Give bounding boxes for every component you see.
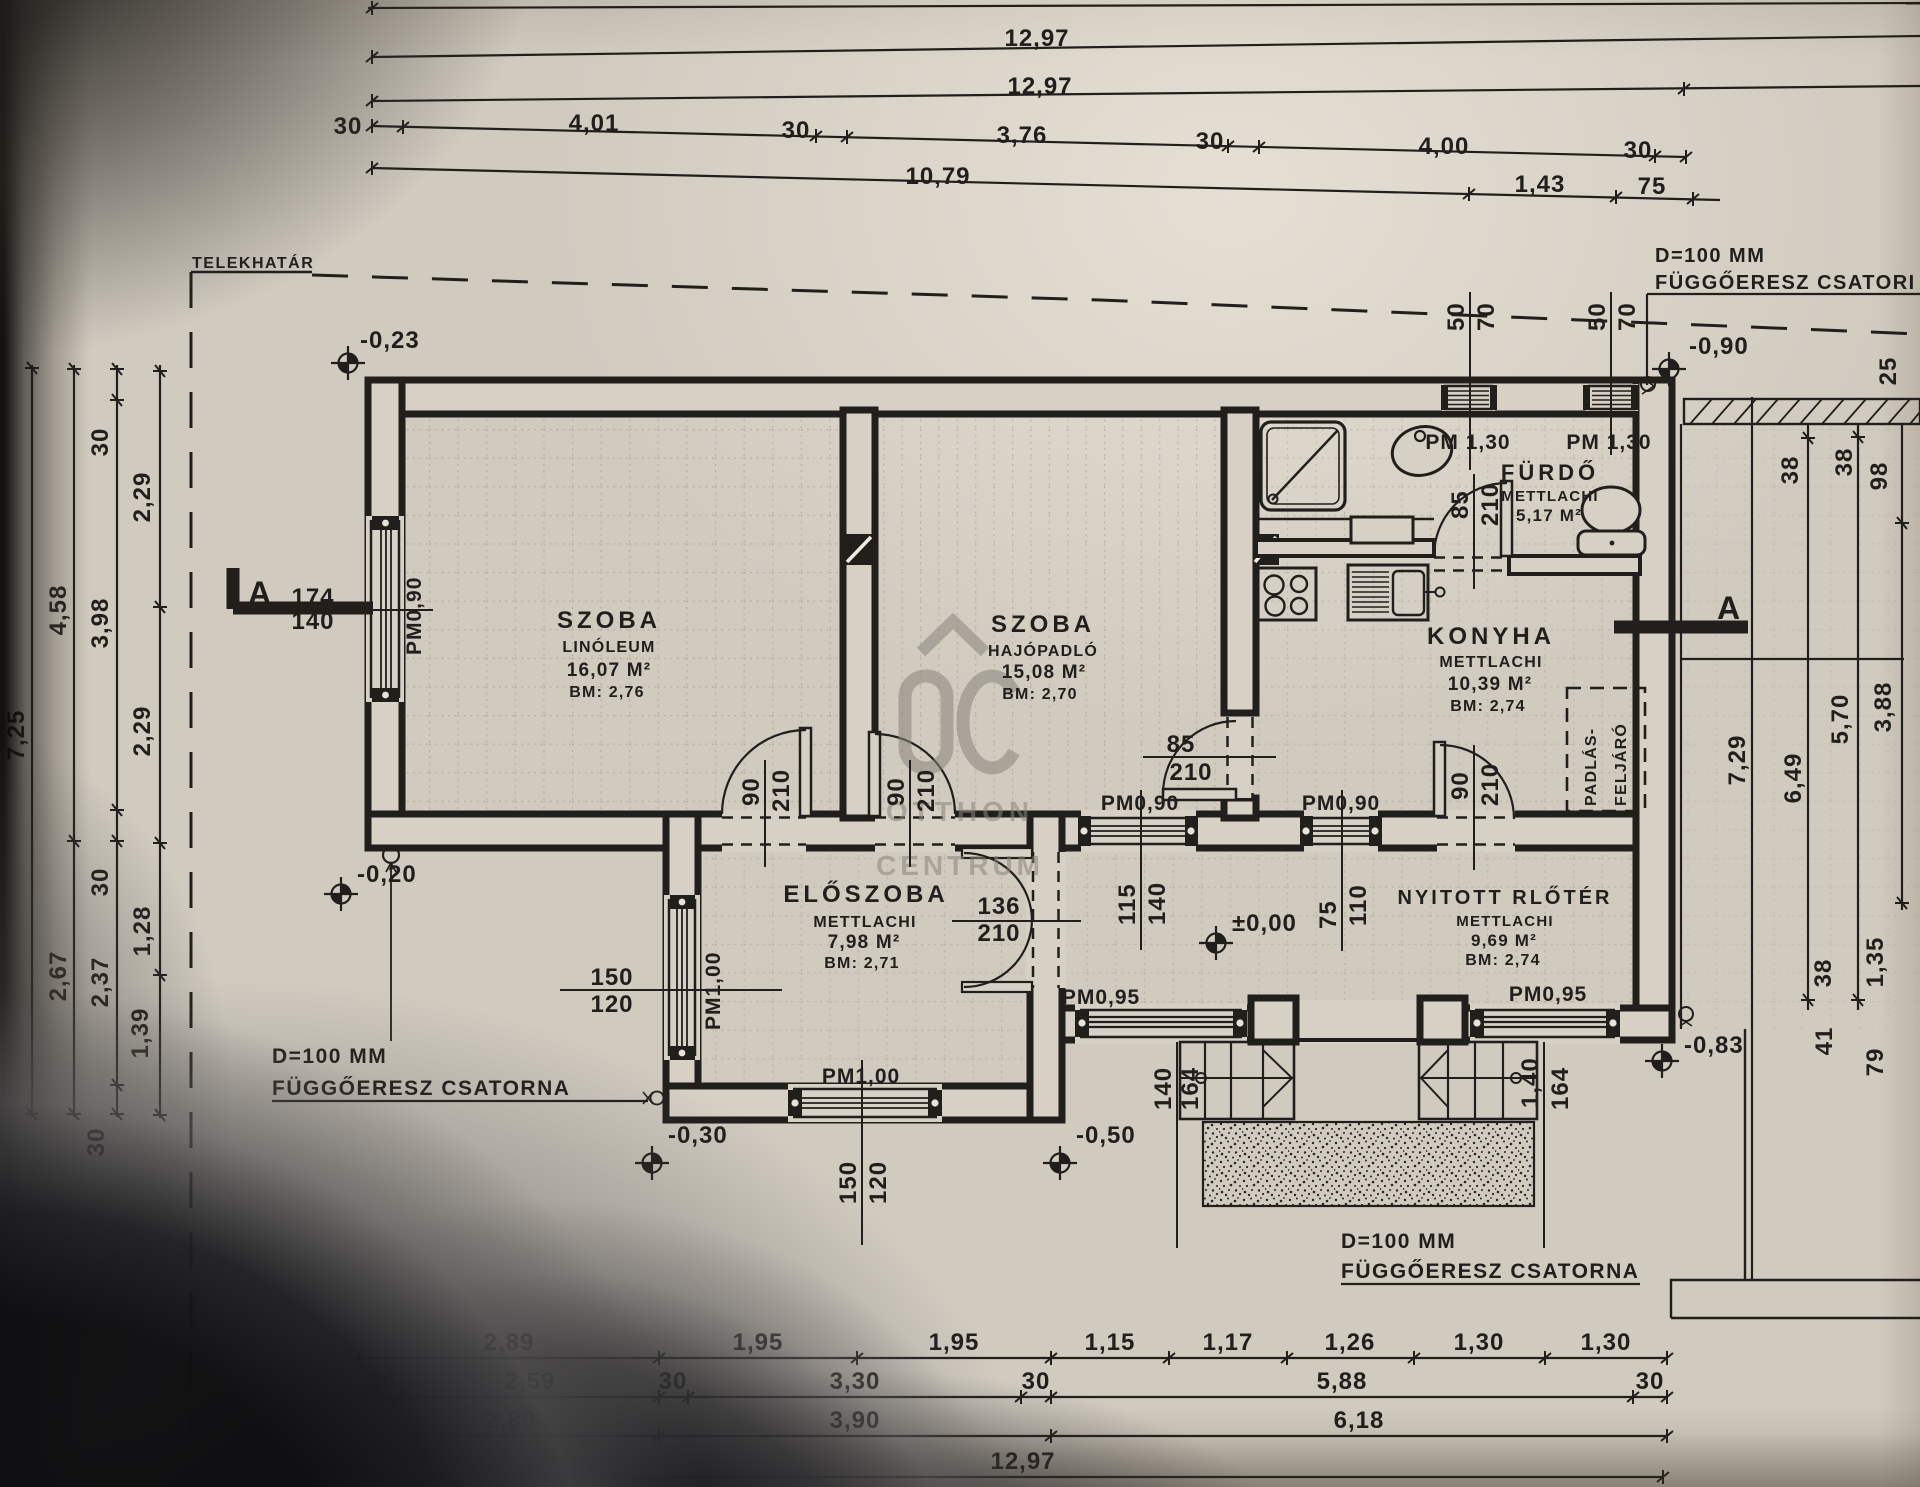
svg-text:7,29: 7,29 (1724, 735, 1751, 786)
svg-text:A: A (1717, 590, 1741, 626)
svg-text:210: 210 (768, 769, 795, 812)
svg-text:210: 210 (1477, 763, 1504, 806)
svg-text:164: 164 (1547, 1067, 1574, 1110)
svg-text:3,90: 3,90 (830, 1407, 881, 1434)
svg-text:12,97: 12,97 (990, 1448, 1055, 1475)
svg-text:1,15: 1,15 (1085, 1329, 1136, 1356)
svg-text:7,98 M²: 7,98 M² (828, 932, 901, 953)
svg-text:4,01: 4,01 (569, 110, 620, 137)
svg-text:METTLACHI: METTLACHI (1501, 488, 1598, 505)
svg-text:30: 30 (1636, 1368, 1665, 1395)
svg-text:LINÓLEUM: LINÓLEUM (562, 637, 655, 656)
svg-text:-0,90: -0,90 (1689, 333, 1749, 360)
svg-text:KONYHA: KONYHA (1427, 623, 1555, 650)
svg-text:75: 75 (1315, 900, 1342, 929)
svg-text:PM 1,30: PM 1,30 (1566, 431, 1651, 454)
svg-text:136: 136 (977, 893, 1020, 920)
svg-text:FELJÁRÓ: FELJÁRÓ (1611, 723, 1630, 806)
svg-text:-0,50: -0,50 (1076, 1122, 1136, 1149)
svg-text:A: A (248, 575, 272, 611)
svg-text:30: 30 (782, 117, 811, 144)
svg-text:3,30: 3,30 (830, 1368, 881, 1395)
svg-text:210: 210 (1477, 483, 1504, 526)
svg-text:-0,30: -0,30 (668, 1122, 728, 1149)
svg-text:90: 90 (883, 777, 910, 806)
svg-text:1,26: 1,26 (1325, 1329, 1376, 1356)
svg-text:3,98: 3,98 (87, 598, 114, 649)
svg-text:METTLACHI: METTLACHI (1439, 654, 1542, 671)
svg-text:CENTRUM: CENTRUM (876, 850, 1044, 881)
svg-text:30: 30 (1624, 137, 1653, 164)
svg-text:1,95: 1,95 (733, 1329, 784, 1356)
svg-text:140: 140 (291, 608, 334, 635)
svg-text:6,49: 6,49 (1780, 753, 1807, 804)
svg-text:25: 25 (1875, 357, 1902, 386)
svg-text:30: 30 (87, 868, 114, 897)
svg-text:4,00: 4,00 (1419, 133, 1470, 160)
svg-text:210: 210 (977, 920, 1020, 947)
svg-text:METTLACHI: METTLACHI (813, 914, 916, 931)
svg-text:10,79: 10,79 (905, 163, 970, 190)
svg-text:-0,20: -0,20 (357, 861, 417, 888)
svg-text:5,88: 5,88 (1317, 1368, 1368, 1395)
svg-text:3,76: 3,76 (997, 122, 1048, 149)
svg-text:FÜGGŐERESZ CSATORNA: FÜGGŐERESZ CSATORNA (272, 1077, 570, 1100)
svg-text:115: 115 (1114, 883, 1141, 925)
svg-text:210: 210 (1169, 759, 1212, 786)
svg-text:50: 50 (1584, 302, 1611, 331)
svg-text:120: 120 (590, 991, 633, 1018)
svg-text:ELŐSZOBA: ELŐSZOBA (783, 880, 948, 908)
svg-text:BM: 2,74: BM: 2,74 (1465, 952, 1540, 969)
svg-text:16,07 M²: 16,07 M² (567, 660, 652, 681)
svg-text:2,89: 2,89 (486, 1407, 537, 1434)
svg-text:1,17: 1,17 (1203, 1329, 1254, 1356)
svg-text:30: 30 (1022, 1368, 1051, 1395)
svg-text:BM: 2,71: BM: 2,71 (824, 955, 899, 972)
svg-text:PADLÁS-: PADLÁS- (1581, 728, 1600, 806)
svg-text:1,43: 1,43 (1515, 171, 1566, 198)
svg-text:D=100 MM: D=100 MM (1655, 245, 1765, 267)
svg-text:PM0,95: PM0,95 (1062, 986, 1140, 1009)
svg-text:75: 75 (1638, 173, 1667, 200)
svg-text:BM: 2,74: BM: 2,74 (1450, 698, 1525, 715)
svg-text:120: 120 (865, 1161, 892, 1204)
svg-text:85: 85 (1447, 490, 1474, 519)
svg-text:140: 140 (1150, 1067, 1177, 1110)
svg-text:-0,23: -0,23 (360, 327, 420, 354)
svg-text:7,25: 7,25 (3, 710, 30, 761)
svg-text:FÜGGŐERESZ CSATORNA: FÜGGŐERESZ CSATORNA (1341, 1260, 1639, 1283)
svg-text:D=100 MM: D=100 MM (1341, 1230, 1456, 1253)
svg-text:79: 79 (1862, 1048, 1889, 1077)
svg-text:110: 110 (1345, 884, 1372, 926)
svg-text:BM: 2,70: BM: 2,70 (1002, 686, 1077, 703)
svg-text:98: 98 (1866, 462, 1893, 491)
svg-text:TELEKHATÁR: TELEKHATÁR (192, 253, 314, 272)
svg-text:70: 70 (1614, 302, 1641, 331)
svg-text:3,88: 3,88 (1870, 682, 1897, 733)
svg-text:PM0,90: PM0,90 (403, 577, 426, 655)
svg-text:1,30: 1,30 (1581, 1329, 1632, 1356)
svg-text:2,29: 2,29 (129, 472, 156, 523)
svg-text:1,35: 1,35 (1862, 937, 1889, 988)
svg-text:4,58: 4,58 (45, 585, 72, 636)
svg-text:30: 30 (83, 1128, 110, 1157)
svg-text:85: 85 (1167, 731, 1196, 758)
svg-text:BM: 2,76: BM: 2,76 (569, 684, 644, 701)
svg-text:10,39 M²: 10,39 M² (1448, 674, 1533, 695)
svg-text:SZOBA: SZOBA (991, 611, 1095, 638)
svg-text:2,29: 2,29 (129, 706, 156, 757)
svg-text:SZOBA: SZOBA (557, 607, 661, 634)
svg-text:30: 30 (334, 113, 363, 140)
svg-text:PM0,95: PM0,95 (1509, 983, 1587, 1006)
svg-text:164: 164 (1177, 1067, 1204, 1110)
svg-text:±0,00: ±0,00 (1232, 910, 1297, 937)
svg-text:38: 38 (1777, 456, 1804, 485)
svg-text:30: 30 (659, 1368, 688, 1395)
svg-text:D=100 MM: D=100 MM (272, 1045, 387, 1068)
svg-text:140: 140 (1144, 882, 1171, 925)
svg-text:38: 38 (1810, 959, 1837, 988)
svg-text:2,37: 2,37 (87, 957, 114, 1008)
svg-text:NYITOTT RLŐTÉR: NYITOTT RLŐTÉR (1398, 886, 1613, 909)
svg-text:41: 41 (1811, 1027, 1838, 1056)
svg-text:FÜRDŐ: FÜRDŐ (1501, 460, 1599, 485)
svg-text:1,40: 1,40 (1517, 1057, 1544, 1108)
svg-text:9,69 M²: 9,69 M² (1471, 931, 1537, 950)
svg-text:1,95: 1,95 (929, 1329, 980, 1356)
svg-text:-0,83: -0,83 (1684, 1032, 1744, 1059)
svg-text:5,17 M²: 5,17 M² (1516, 506, 1582, 525)
svg-text:30: 30 (368, 1368, 397, 1395)
svg-text:2,59: 2,59 (505, 1368, 556, 1395)
svg-text:30: 30 (1196, 128, 1225, 155)
svg-text:5,70: 5,70 (1827, 694, 1854, 745)
svg-text:12,97: 12,97 (1007, 73, 1072, 100)
svg-text:90: 90 (738, 777, 765, 806)
svg-text:30: 30 (87, 428, 114, 457)
svg-text:6,18: 6,18 (1334, 1407, 1385, 1434)
svg-text:150: 150 (835, 1161, 862, 1204)
svg-text:1,28: 1,28 (129, 906, 156, 957)
svg-text:2,89: 2,89 (484, 1329, 535, 1356)
svg-text:150: 150 (590, 964, 633, 991)
svg-text:174: 174 (291, 584, 334, 611)
svg-text:210: 210 (913, 769, 940, 812)
svg-text:12,97: 12,97 (1004, 25, 1069, 52)
svg-text:1,39: 1,39 (127, 1008, 154, 1059)
svg-text:1,30: 1,30 (1454, 1329, 1505, 1356)
svg-text:HAJÓPADLÓ: HAJÓPADLÓ (988, 641, 1098, 660)
svg-text:METTLACHI: METTLACHI (1456, 913, 1553, 930)
svg-text:PM 1,30: PM 1,30 (1425, 431, 1510, 454)
svg-text:FÜGGŐERESZ CSATORI: FÜGGŐERESZ CSATORI (1655, 271, 1916, 294)
svg-text:38: 38 (1831, 448, 1858, 477)
svg-text:15,08 M²: 15,08 M² (1002, 662, 1087, 683)
svg-text:2,67: 2,67 (45, 951, 72, 1002)
svg-text:90: 90 (1447, 771, 1474, 800)
